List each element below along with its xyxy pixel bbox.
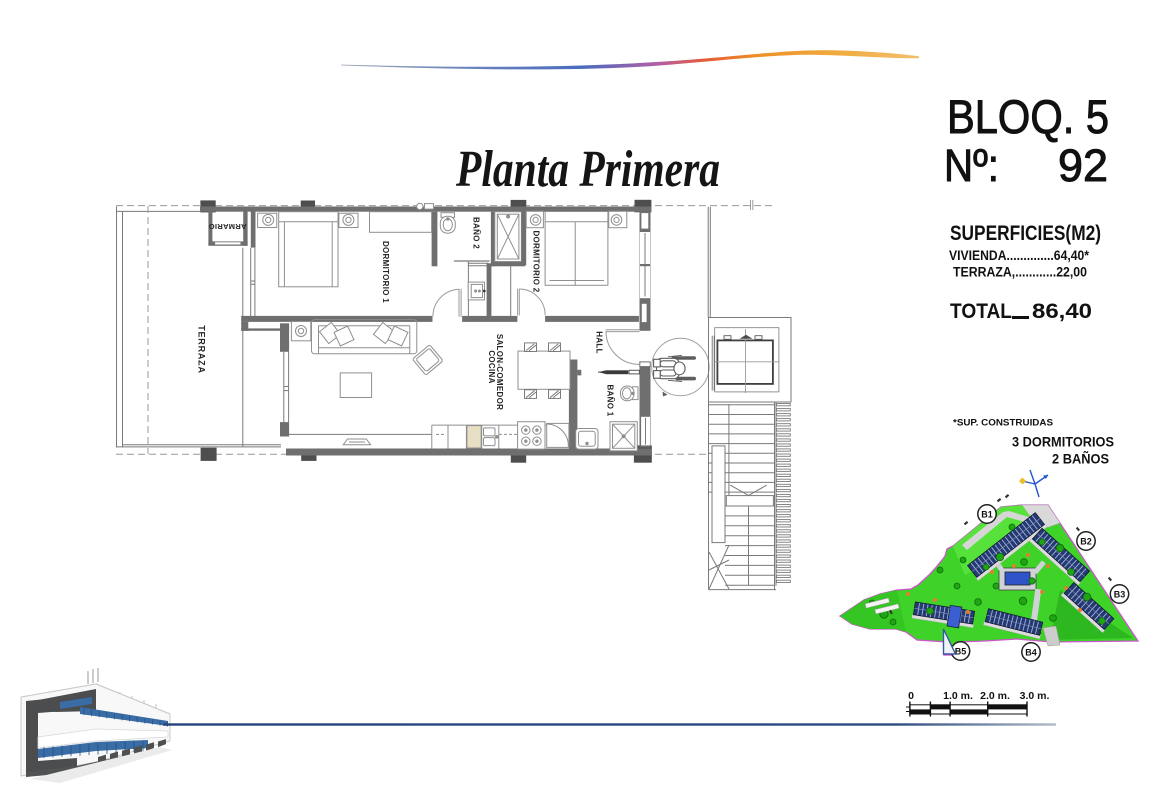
svg-text:B1: B1 (981, 510, 993, 520)
svg-text:3 DORMITORIOS: 3 DORMITORIOS (1012, 434, 1114, 450)
svg-text:ARMARIO: ARMARIO (209, 222, 247, 231)
svg-text:SUPERFICIES(M2): SUPERFICIES(M2) (950, 222, 1101, 245)
svg-text:3.0 m.: 3.0 m. (1020, 690, 1050, 702)
svg-text:*SUP. CONSTRUIDAS: *SUP. CONSTRUIDAS (953, 418, 1053, 429)
svg-text:TERRAZA: TERRAZA (197, 325, 207, 374)
svg-text:COCINA: COCINA (487, 350, 496, 383)
svg-text:0: 0 (908, 690, 914, 702)
svg-text:BLOQ. 5: BLOQ. 5 (947, 90, 1109, 143)
svg-text:B4: B4 (1025, 648, 1037, 658)
svg-text:Planta Primera: Planta Primera (455, 141, 720, 198)
svg-text:DORMITORIO 1: DORMITORIO 1 (381, 241, 390, 303)
svg-text:B3: B3 (1114, 590, 1126, 600)
svg-text:BAÑO 1: BAÑO 1 (606, 384, 615, 416)
svg-text:BAÑO 2: BAÑO 2 (472, 217, 481, 249)
svg-text:TERRAZA,............22,00: TERRAZA,............22,00 (953, 265, 1087, 280)
svg-text:1.0 m.: 1.0 m. (943, 690, 973, 702)
svg-text:Nº:: Nº: (944, 140, 999, 191)
svg-text:92: 92 (1058, 140, 1108, 191)
svg-text:VIVIENDA..............64,40*: VIVIENDA..............64,40* (949, 248, 1090, 263)
svg-text:B2: B2 (1080, 537, 1092, 547)
svg-text:DORMITORIO 2: DORMITORIO 2 (532, 230, 541, 292)
svg-text:B5: B5 (955, 647, 967, 657)
svg-text:2.0 m.: 2.0 m. (980, 690, 1010, 702)
svg-text:2 BAÑOS: 2 BAÑOS (1052, 450, 1109, 467)
svg-text:HALL: HALL (595, 331, 604, 354)
svg-text:86,40: 86,40 (1032, 300, 1092, 323)
svg-text:TOTAL: TOTAL (950, 300, 1012, 323)
